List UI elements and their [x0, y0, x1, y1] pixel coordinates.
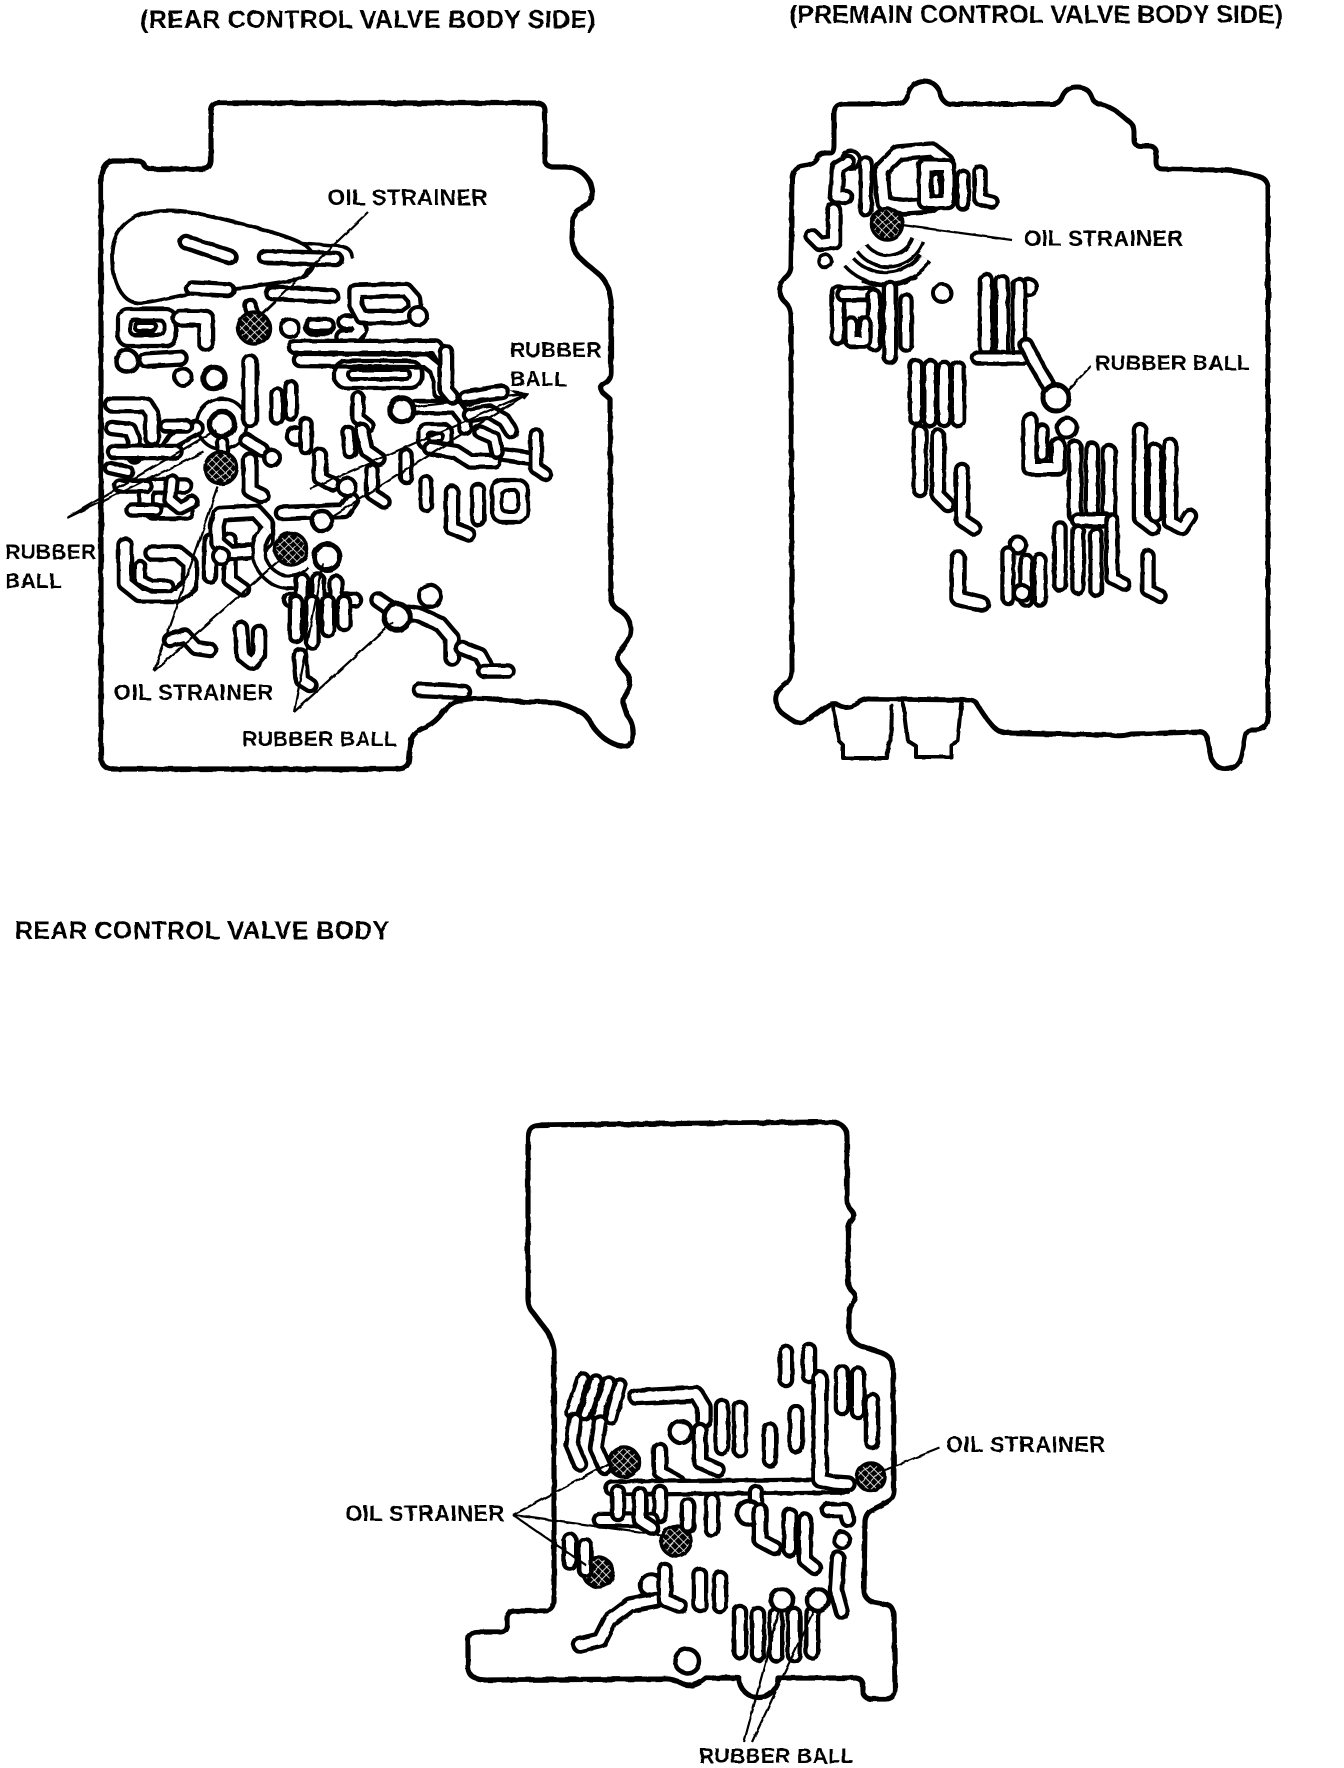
svg-text:OIL STRAINER: OIL STRAINER	[328, 185, 488, 210]
svg-text:OIL STRAINER: OIL STRAINER	[345, 1501, 505, 1526]
svg-text:RUBBER: RUBBER	[510, 339, 602, 362]
svg-text:RUBBER BALL: RUBBER BALL	[1095, 352, 1250, 375]
svg-text:REAR CONTROL VALVE BODY: REAR CONTROL VALVE BODY	[15, 917, 390, 945]
svg-text:BALL: BALL	[5, 570, 62, 593]
svg-text:RUBBER BALL: RUBBER BALL	[699, 1745, 854, 1768]
svg-text:RUBBER BALL: RUBBER BALL	[242, 728, 397, 751]
svg-text:OIL STRAINER: OIL STRAINER	[946, 1432, 1106, 1457]
svg-text:BALL: BALL	[510, 368, 567, 391]
svg-text:(PREMAIN CONTROL VALVE BODY SI: (PREMAIN CONTROL VALVE BODY SIDE)	[789, 1, 1283, 29]
svg-text:(REAR CONTROL VALVE BODY SIDE): (REAR CONTROL VALVE BODY SIDE)	[140, 6, 596, 34]
svg-text:OIL STRAINER: OIL STRAINER	[1024, 226, 1184, 251]
svg-text:OIL STRAINER: OIL STRAINER	[114, 680, 274, 705]
svg-text:RUBBER: RUBBER	[5, 541, 97, 564]
